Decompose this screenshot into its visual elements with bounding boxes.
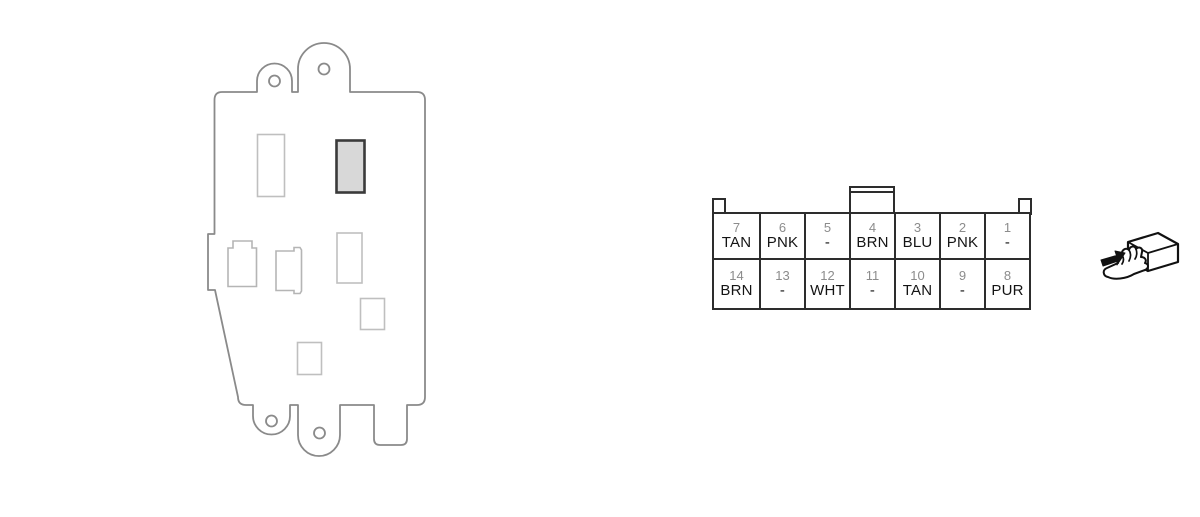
connector-latch-tab [849,186,895,214]
pin-number: 5 [824,221,831,235]
connector-latch-line [851,191,893,193]
wire-color-label: - [960,283,965,300]
wire-color-label: BRN [720,283,752,300]
wire-color-label: TAN [722,235,752,252]
pin-cell-3: 3 BLU [894,214,939,258]
pin-cell-1: 1 - [984,214,1029,258]
wire-color-label: - [870,283,875,300]
wire-color-label: - [1005,235,1010,252]
diagram-canvas: 7 TAN 6 PNK 5 - 4 BRN 3 BLU 2 PNK [0,0,1200,517]
pin-number: 14 [729,269,743,283]
wire-color-label: BRN [856,235,888,252]
hand-holding-connector-icon [1098,226,1186,290]
mounting-hole-icon [266,416,277,427]
pin-cell-2: 2 PNK [939,214,984,258]
pin-number: 2 [959,221,966,235]
module-outline [208,43,425,456]
pin-cell-8: 8 PUR [984,258,1029,308]
connector-pin-grid: 7 TAN 6 PNK 5 - 4 BRN 3 BLU 2 PNK [712,212,1031,310]
pin-cell-4: 4 BRN [849,214,894,258]
pin-number: 6 [779,221,786,235]
wire-color-label: PUR [991,283,1023,300]
pin-cell-10: 10 TAN [894,258,939,308]
pin-cell-7: 7 TAN [714,214,759,258]
pin-number: 7 [733,221,740,235]
pin-number: 10 [910,269,924,283]
mounting-hole-icon [319,64,330,75]
pin-cell-5: 5 - [804,214,849,258]
pin-number: 4 [869,221,876,235]
wire-color-label: WHT [810,283,845,300]
pin-number: 3 [914,221,921,235]
wire-color-label: PNK [767,235,798,252]
mounting-hole-icon [314,428,325,439]
wire-color-label: - [780,283,785,300]
pin-number: 1 [1004,221,1011,235]
wire-color-label: BLU [903,235,933,252]
pin-number: 8 [1004,269,1011,283]
wire-color-label: PNK [947,235,978,252]
pin-cell-9: 9 - [939,258,984,308]
pin-number: 12 [820,269,834,283]
pin-cell-13: 13 - [759,258,804,308]
module-rear-view-illustration [190,30,440,470]
wire-color-label: TAN [903,283,933,300]
pin-number: 13 [775,269,789,283]
connector-face-view: 7 TAN 6 PNK 5 - 4 BRN 3 BLU 2 PNK [712,186,1032,311]
mounting-hole-icon [269,76,280,87]
pin-cell-14: 14 BRN [714,258,759,308]
pin-number: 11 [866,269,880,283]
pin-cell-12: 12 WHT [804,258,849,308]
pin-number: 9 [959,269,966,283]
pin-cell-6: 6 PNK [759,214,804,258]
wire-color-label: - [825,235,830,252]
module-highlighted-slot [337,141,365,193]
pin-cell-11: 11 - [849,258,894,308]
